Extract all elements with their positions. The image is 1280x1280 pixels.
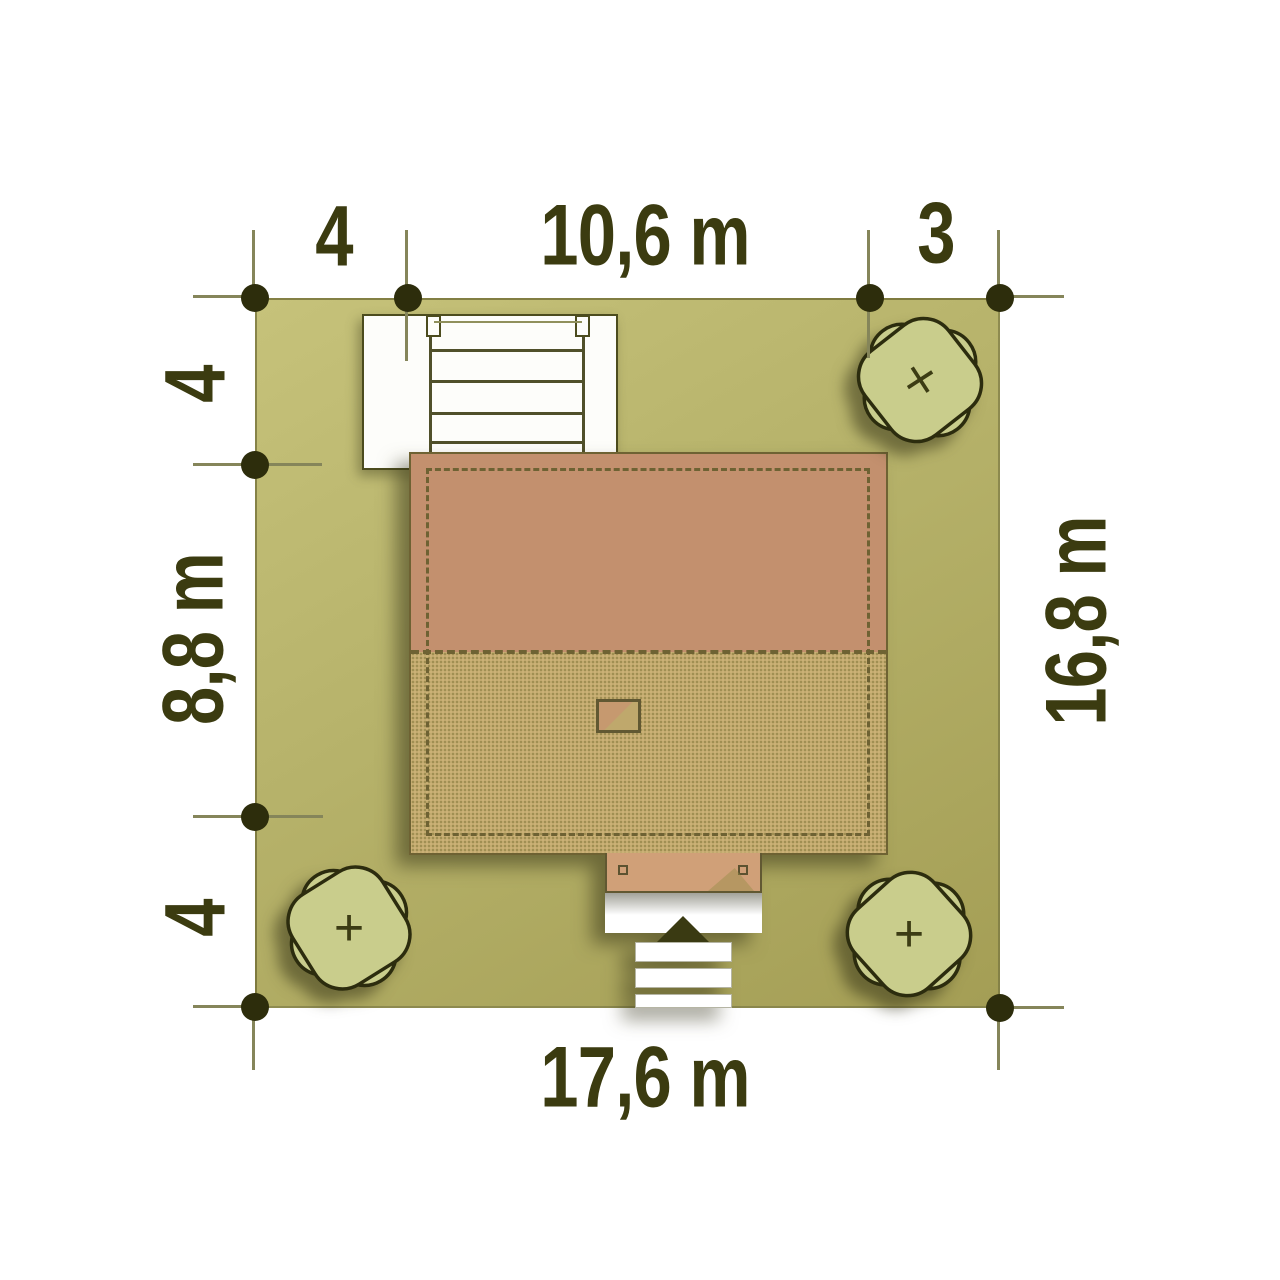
dim-label-top-left: 4 (315, 188, 352, 287)
entrance-step (635, 968, 732, 988)
tree-plus-mark: + (894, 905, 924, 963)
corner-dot (986, 284, 1014, 312)
corner-dot (986, 994, 1014, 1022)
measure-dot (856, 284, 884, 312)
tree-top-right: × (835, 295, 1005, 465)
dim-label-top-right: 3 (917, 185, 954, 284)
measure-dot (241, 803, 269, 831)
dim-label-left-bottom: 4 (147, 899, 246, 936)
roof-plan (409, 452, 888, 855)
entrance-step (635, 994, 732, 1008)
dim-label-left-middle: 8,8 m (145, 553, 244, 725)
corner-dot (241, 993, 269, 1021)
dim-label-right: 16,8 m (1028, 516, 1127, 725)
site-plan-canvas: × + + 4 10,6 m 3 4 8,8 m 4 16,8 m (0, 0, 1280, 1280)
measure-dot (394, 284, 422, 312)
chimney (596, 699, 641, 733)
tree-bottom-left: + (264, 843, 434, 1013)
entrance-porch (605, 853, 762, 893)
wall-outline-dashed (426, 468, 870, 836)
tree-bottom-right: + (824, 849, 994, 1019)
dim-label-top-center: 10,6 m (540, 187, 749, 286)
dim-label-bottom: 17,6 m (540, 1029, 749, 1128)
dim-label-left-top: 4 (147, 365, 246, 402)
measure-dot (241, 451, 269, 479)
porch-column (618, 865, 628, 875)
corner-dot (241, 284, 269, 312)
porch-column (738, 865, 748, 875)
entrance-step (635, 942, 732, 962)
tree-plus-mark: + (334, 899, 364, 957)
